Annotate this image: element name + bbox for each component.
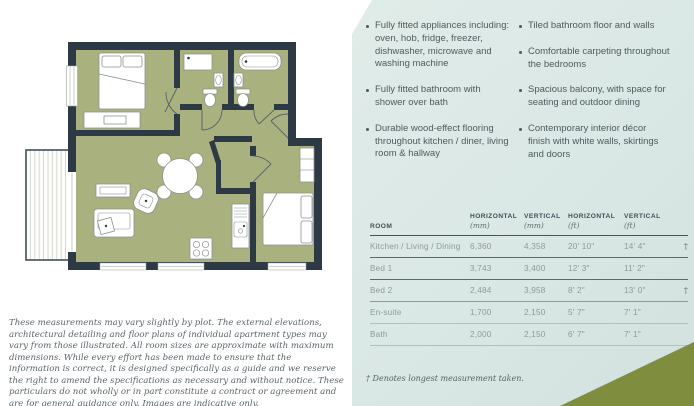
room-name: En-suite: [370, 308, 470, 317]
kitchen-hob: [190, 238, 212, 259]
bullet-dot-icon: [519, 51, 522, 54]
spec-panel: Fully fitted appliances including: oven,…: [352, 0, 694, 406]
brochure-page: These measurements may vary slightly by …: [0, 0, 694, 406]
table-row: Bed 2 2,484 3,958 8' 2" 13' 0" †: [370, 280, 688, 302]
bullet-dot-icon: [366, 128, 369, 131]
room-name: Kitchen / Living / Dining: [370, 242, 470, 251]
list-item: Tiled bathroom floor and walls: [519, 20, 671, 33]
feature-text: Contemporary interior décor finish with …: [528, 123, 671, 161]
bathroom-basin: [234, 73, 243, 87]
bedroom-2-wardrobe: [300, 148, 314, 182]
room-name: Bed 1: [370, 264, 470, 273]
feature-text: Durable wood-effect flooring throughout …: [375, 123, 512, 161]
kitchen-sink-unit: [232, 204, 249, 248]
list-item: Spacious balcony, with space for seating…: [519, 84, 671, 110]
room-name: Bath: [370, 330, 470, 339]
room-dimensions-table: ROOM HORIZONTAL(mm) VERTICAL(mm) HORIZON…: [370, 198, 688, 346]
bullet-dot-icon: [366, 89, 369, 92]
floor-plan-svg: [0, 0, 350, 320]
column-header: ROOM: [370, 223, 470, 230]
en-suite-shower: [184, 54, 212, 70]
bullet-dot-icon: [519, 89, 522, 92]
feature-text: Tiled bathroom floor and walls: [528, 20, 654, 33]
feature-text: Spacious balcony, with space for seating…: [528, 84, 671, 110]
column-header: HORIZONTAL(ft): [568, 213, 624, 230]
feature-text: Fully fitted appliances including: oven,…: [375, 20, 512, 71]
table-row: En-suite 1,700 2,150 5' 7" 7' 1": [370, 302, 688, 324]
features-list-right: Tiled bathroom floor and walls Comfortab…: [519, 20, 671, 174]
sideboard: [96, 184, 130, 197]
bullet-dot-icon: [366, 25, 369, 28]
feature-text: Comfortable carpeting throughout the bed…: [528, 46, 671, 72]
list-item: Fully fitted appliances including: oven,…: [366, 20, 512, 71]
room-name: Bed 2: [370, 286, 470, 295]
column-header: VERTICAL(mm): [524, 213, 568, 230]
table-header-row: ROOM HORIZONTAL(mm) VERTICAL(mm) HORIZON…: [370, 198, 688, 236]
bullet-dot-icon: [519, 128, 522, 131]
list-item: Comfortable carpeting throughout the bed…: [519, 46, 671, 72]
list-item: Fully fitted bathroom with shower over b…: [366, 84, 512, 110]
dagger-mark: †: [676, 242, 688, 252]
column-header: HORIZONTAL(mm): [470, 213, 524, 230]
list-item: Contemporary interior décor finish with …: [519, 123, 671, 161]
floor-plan: [0, 0, 350, 320]
bedroom-2-bed: [263, 193, 313, 245]
sofa: [94, 209, 134, 237]
bathtub: [239, 53, 281, 70]
table-row: Bath 2,000 2,150 6' 7" 7' 1": [370, 324, 688, 346]
dining-table-with-chairs: [157, 153, 203, 199]
balcony: [26, 150, 70, 260]
features-list-left: Fully fitted appliances including: oven,…: [366, 20, 512, 174]
bedroom-1-wardrobe: [84, 112, 140, 128]
column-header: VERTICAL(ft): [624, 213, 676, 230]
dagger-mark: †: [676, 286, 688, 296]
list-item: Durable wood-effect flooring throughout …: [366, 123, 512, 161]
table-row: Bed 1 3,743 3,400 12' 3" 11' 2": [370, 258, 688, 280]
disclaimer-text: These measurements may vary slightly by …: [9, 318, 345, 406]
table-footnote: † Denotes longest measurement taken.: [366, 374, 524, 383]
bedroom-1-bed: [99, 53, 145, 109]
feature-text: Fully fitted bathroom with shower over b…: [375, 84, 512, 110]
bullet-dot-icon: [519, 25, 522, 28]
table-row: Kitchen / Living / Dining 6,360 4,358 20…: [370, 236, 688, 258]
en-suite-basin: [214, 73, 223, 87]
